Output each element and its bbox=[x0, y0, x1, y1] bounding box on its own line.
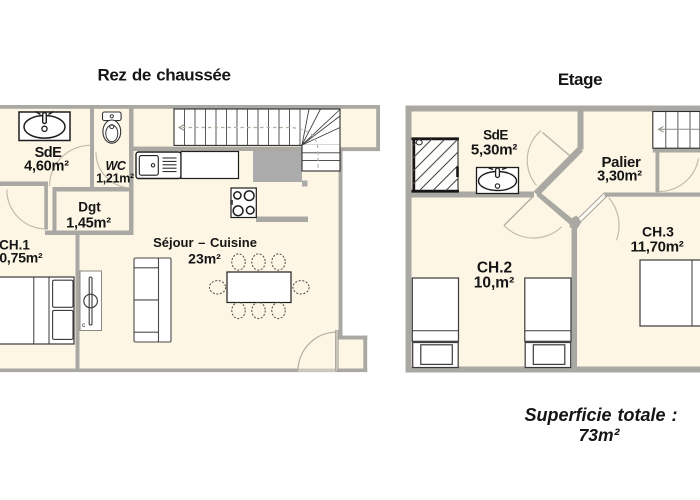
svg-text:Dgt: Dgt bbox=[78, 200, 101, 215]
svg-text:Etage: Etage bbox=[558, 70, 602, 89]
svg-text:10,75m²: 10,75m² bbox=[0, 250, 43, 266]
svg-text:SdE: SdE bbox=[483, 128, 508, 143]
svg-text:5,30m²: 5,30m² bbox=[471, 142, 518, 159]
svg-text:10,m²: 10,m² bbox=[474, 275, 515, 292]
svg-text:Superficie totale :: Superficie totale : bbox=[524, 405, 677, 425]
svg-text:3,30m²: 3,30m² bbox=[597, 169, 642, 185]
svg-text:23m²: 23m² bbox=[188, 251, 221, 267]
svg-text:Rez de chaussée: Rez de chaussée bbox=[97, 66, 230, 85]
svg-text:11,70m²: 11,70m² bbox=[631, 239, 684, 256]
svg-text:1,21m²: 1,21m² bbox=[96, 172, 134, 186]
svg-text:Séjour – Cuisine: Séjour – Cuisine bbox=[153, 235, 257, 250]
svg-text:4,60m²: 4,60m² bbox=[24, 159, 69, 175]
svg-text:1,45m²: 1,45m² bbox=[66, 216, 111, 232]
svg-text:73m²: 73m² bbox=[579, 425, 621, 445]
svg-text:CH.3: CH.3 bbox=[642, 224, 674, 240]
